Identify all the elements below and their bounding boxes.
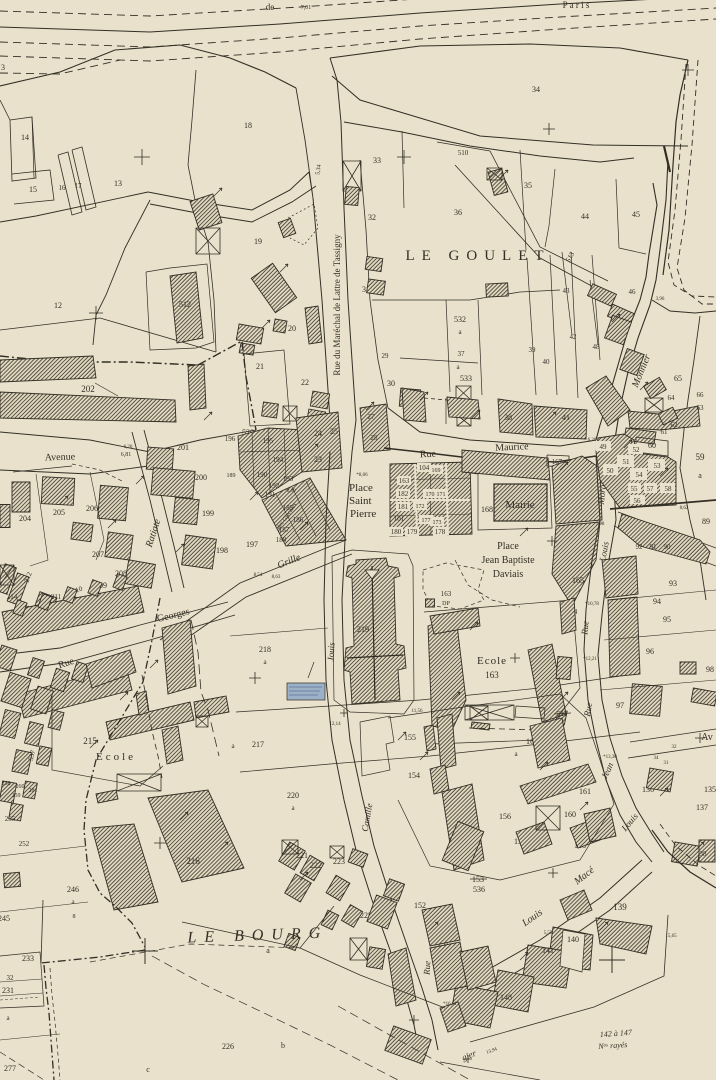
- svg-text:510: 510: [458, 149, 469, 157]
- svg-text:50: 50: [607, 467, 615, 475]
- svg-text:37: 37: [458, 350, 466, 358]
- svg-text:214: 214: [7, 593, 18, 601]
- svg-text:94: 94: [653, 597, 661, 606]
- svg-text:23: 23: [314, 455, 322, 464]
- svg-text:252: 252: [19, 840, 30, 848]
- svg-text:154: 154: [408, 771, 420, 780]
- svg-text:c: c: [146, 1065, 150, 1074]
- svg-text:160: 160: [564, 810, 576, 819]
- svg-text:172: 172: [416, 504, 425, 510]
- svg-text:Daviais: Daviais: [493, 569, 524, 580]
- svg-text:512: 512: [179, 300, 191, 309]
- svg-text:226: 226: [222, 1042, 234, 1051]
- svg-text:258: 258: [2, 781, 11, 787]
- svg-text:22: 22: [301, 378, 309, 387]
- svg-text:215: 215: [83, 736, 97, 746]
- svg-text:148: 148: [500, 993, 512, 1002]
- svg-text:161: 161: [579, 787, 591, 796]
- svg-text:139: 139: [613, 902, 627, 912]
- svg-text:6,81: 6,81: [121, 452, 132, 458]
- svg-text:8,63: 8,63: [272, 575, 281, 580]
- svg-text:17: 17: [75, 182, 83, 190]
- svg-text:197: 197: [246, 540, 258, 549]
- svg-text:Maurice: Maurice: [495, 441, 529, 454]
- svg-text:28: 28: [371, 434, 379, 442]
- svg-text:38: 38: [700, 850, 708, 858]
- svg-text:171: 171: [437, 492, 446, 498]
- svg-text:48: 48: [593, 343, 601, 351]
- svg-text:46: 46: [629, 288, 637, 296]
- svg-text:*8,00: *8,00: [284, 489, 296, 494]
- svg-text:14: 14: [21, 133, 29, 142]
- svg-text:52: 52: [633, 446, 641, 454]
- svg-text:217: 217: [252, 740, 264, 749]
- svg-text:12,14: 12,14: [329, 722, 341, 727]
- svg-text:92: 92: [636, 543, 644, 551]
- svg-text:6,20: 6,20: [588, 438, 597, 443]
- svg-text:a: a: [698, 471, 702, 480]
- svg-text:32: 32: [672, 745, 678, 750]
- svg-text:163: 163: [441, 590, 452, 598]
- svg-text:18: 18: [244, 121, 252, 130]
- svg-text:168: 168: [481, 505, 493, 514]
- svg-text:30: 30: [387, 379, 395, 388]
- svg-text:153: 153: [472, 875, 484, 884]
- svg-text:192: 192: [269, 482, 280, 490]
- svg-text:152: 152: [414, 901, 426, 910]
- svg-text:39: 39: [529, 346, 537, 354]
- svg-text:93: 93: [669, 579, 677, 588]
- svg-text:29: 29: [382, 352, 390, 360]
- svg-text:24: 24: [314, 429, 322, 438]
- svg-text:*10,78: *10,78: [585, 602, 599, 607]
- svg-text:179: 179: [407, 528, 418, 536]
- svg-text:198: 198: [216, 546, 228, 555]
- svg-text:532: 532: [454, 315, 466, 324]
- svg-text:182: 182: [398, 490, 409, 498]
- svg-text:91: 91: [650, 543, 658, 551]
- svg-text:163: 163: [399, 477, 410, 485]
- svg-text:Ecole: Ecole: [96, 751, 136, 763]
- svg-text:12: 12: [54, 301, 62, 310]
- svg-text:63: 63: [697, 404, 705, 412]
- svg-text:Av: Av: [701, 732, 712, 743]
- svg-text:202: 202: [81, 384, 95, 394]
- svg-text:38: 38: [504, 413, 512, 422]
- svg-text:95: 95: [663, 615, 671, 624]
- svg-text:59: 59: [696, 452, 706, 462]
- svg-text:255: 255: [5, 815, 16, 823]
- svg-text:*13,30: *13,30: [603, 755, 617, 760]
- svg-text:204: 204: [19, 514, 31, 523]
- svg-text:188: 188: [276, 536, 287, 544]
- svg-text:Rue: Rue: [420, 449, 437, 461]
- svg-text:141: 141: [542, 946, 554, 955]
- svg-text:Place: Place: [497, 541, 519, 552]
- svg-text:233: 233: [22, 954, 34, 963]
- svg-text:49: 49: [600, 443, 608, 451]
- svg-text:8: 8: [73, 914, 76, 920]
- svg-text:42: 42: [570, 333, 578, 341]
- svg-text:170: 170: [426, 492, 435, 498]
- svg-text:260: 260: [16, 784, 25, 790]
- svg-text:19: 19: [254, 237, 262, 246]
- svg-text:246: 246: [67, 885, 79, 894]
- svg-text:45: 45: [632, 210, 640, 219]
- svg-text:189: 189: [227, 473, 236, 479]
- svg-text:54: 54: [636, 471, 644, 479]
- svg-text:32: 32: [368, 213, 376, 222]
- svg-text:44: 44: [581, 212, 589, 221]
- svg-text:36: 36: [454, 208, 462, 217]
- svg-text:195: 195: [263, 437, 274, 445]
- svg-text:196: 196: [225, 435, 236, 443]
- svg-text:169: 169: [432, 468, 441, 474]
- svg-text:90: 90: [664, 543, 672, 551]
- svg-text:536: 536: [473, 885, 485, 894]
- svg-text:*8,06: *8,06: [356, 473, 368, 478]
- svg-text:57: 57: [647, 485, 655, 493]
- svg-text:Mairie: Mairie: [505, 499, 534, 511]
- svg-text:533: 533: [460, 374, 472, 383]
- svg-text:97: 97: [616, 701, 624, 710]
- svg-text:Pierre: Pierre: [350, 508, 376, 520]
- svg-text:65: 65: [674, 374, 682, 383]
- svg-text:15: 15: [29, 185, 37, 194]
- svg-text:231: 231: [2, 986, 14, 995]
- svg-text:Jean Baptiste: Jean Baptiste: [481, 555, 535, 566]
- svg-text:3: 3: [1, 63, 5, 72]
- svg-text:135: 135: [704, 785, 716, 794]
- svg-text:218: 218: [259, 645, 271, 654]
- svg-text:*16,51: *16,51: [443, 1002, 457, 1007]
- svg-text:190: 190: [257, 471, 268, 479]
- svg-text:33: 33: [373, 156, 381, 165]
- svg-text:191: 191: [265, 491, 276, 499]
- svg-text:20: 20: [288, 324, 296, 333]
- svg-text:25: 25: [330, 427, 338, 436]
- svg-text:177: 177: [422, 518, 431, 524]
- svg-text:163: 163: [485, 670, 499, 680]
- svg-text:96: 96: [646, 647, 654, 656]
- svg-text:178: 178: [435, 528, 446, 536]
- svg-text:216: 216: [186, 856, 200, 866]
- svg-text:137: 137: [696, 803, 708, 812]
- svg-text:Avenue: Avenue: [45, 451, 76, 463]
- svg-text:140: 140: [567, 935, 579, 944]
- svg-text:219: 219: [357, 625, 369, 634]
- svg-text:220: 220: [287, 791, 299, 800]
- svg-text:51: 51: [623, 458, 631, 466]
- svg-text:Saint: Saint: [349, 495, 372, 507]
- svg-text:de: de: [266, 2, 275, 12]
- svg-text:35: 35: [524, 181, 532, 190]
- svg-text:66: 66: [697, 391, 705, 399]
- svg-text:206: 206: [86, 504, 98, 513]
- svg-text:173: 173: [433, 520, 442, 526]
- svg-text:13: 13: [114, 179, 122, 188]
- svg-text:156: 156: [499, 812, 511, 821]
- svg-text:7,98: 7,98: [596, 522, 605, 527]
- svg-text:193: 193: [283, 475, 294, 483]
- svg-text:DP: DP: [442, 601, 450, 607]
- svg-text:27: 27: [368, 413, 376, 421]
- svg-text:55: 55: [631, 485, 639, 493]
- svg-text:89: 89: [702, 517, 710, 526]
- svg-text:21: 21: [256, 362, 264, 371]
- svg-text:200: 200: [195, 473, 207, 482]
- svg-text:165: 165: [572, 576, 584, 585]
- svg-text:LE GOULET: LE GOULET: [405, 248, 550, 264]
- svg-text:194: 194: [273, 456, 284, 464]
- svg-text:201: 201: [177, 443, 189, 452]
- svg-text:6,20: 6,20: [124, 445, 133, 450]
- svg-text:8,62: 8,62: [680, 506, 689, 511]
- svg-text:a: a: [266, 946, 270, 955]
- svg-text:259: 259: [12, 793, 21, 799]
- svg-text:3,96: 3,96: [656, 297, 665, 302]
- svg-text:Rue du Maréchal de Lattre de T: Rue du Maréchal de Lattre de Tassigny: [332, 234, 342, 376]
- svg-text:16: 16: [59, 184, 67, 192]
- svg-text:b: b: [281, 1041, 285, 1050]
- svg-text:222: 222: [310, 861, 322, 870]
- svg-text:15,65: 15,65: [665, 934, 677, 939]
- svg-text:Rue: Rue: [579, 620, 590, 636]
- svg-text:104: 104: [419, 464, 430, 472]
- svg-text:61: 61: [661, 428, 669, 436]
- svg-text:41: 41: [562, 413, 570, 422]
- svg-text:205: 205: [53, 508, 65, 517]
- svg-text:Ecole: Ecole: [477, 655, 507, 667]
- svg-text:34: 34: [532, 85, 540, 94]
- svg-text:Place: Place: [349, 482, 373, 494]
- svg-text:98: 98: [706, 665, 714, 674]
- svg-text:58: 58: [665, 485, 673, 493]
- svg-text:60: 60: [648, 441, 656, 450]
- svg-text:101: 101: [394, 515, 405, 523]
- svg-text:7,01: 7,01: [301, 5, 312, 11]
- svg-text:281: 281: [29, 788, 38, 794]
- svg-text:43: 43: [563, 287, 571, 295]
- svg-text:64: 64: [668, 394, 676, 402]
- svg-text:34: 34: [654, 756, 660, 761]
- svg-text:277: 277: [4, 1064, 16, 1073]
- svg-text:P a r i s: P a r i s: [563, 0, 590, 10]
- svg-text:245: 245: [0, 914, 10, 923]
- svg-text:186: 186: [293, 516, 304, 524]
- svg-text:53: 53: [654, 462, 662, 470]
- svg-text:31: 31: [664, 761, 670, 766]
- svg-text:62: 62: [671, 421, 679, 429]
- svg-text:Rue: Rue: [422, 961, 433, 977]
- svg-text:Jouis: Jouis: [326, 642, 337, 662]
- svg-text:180: 180: [391, 528, 402, 536]
- svg-text:56: 56: [634, 497, 642, 505]
- svg-text:199: 199: [202, 509, 214, 518]
- svg-text:181: 181: [398, 503, 409, 511]
- svg-text:40: 40: [543, 358, 551, 366]
